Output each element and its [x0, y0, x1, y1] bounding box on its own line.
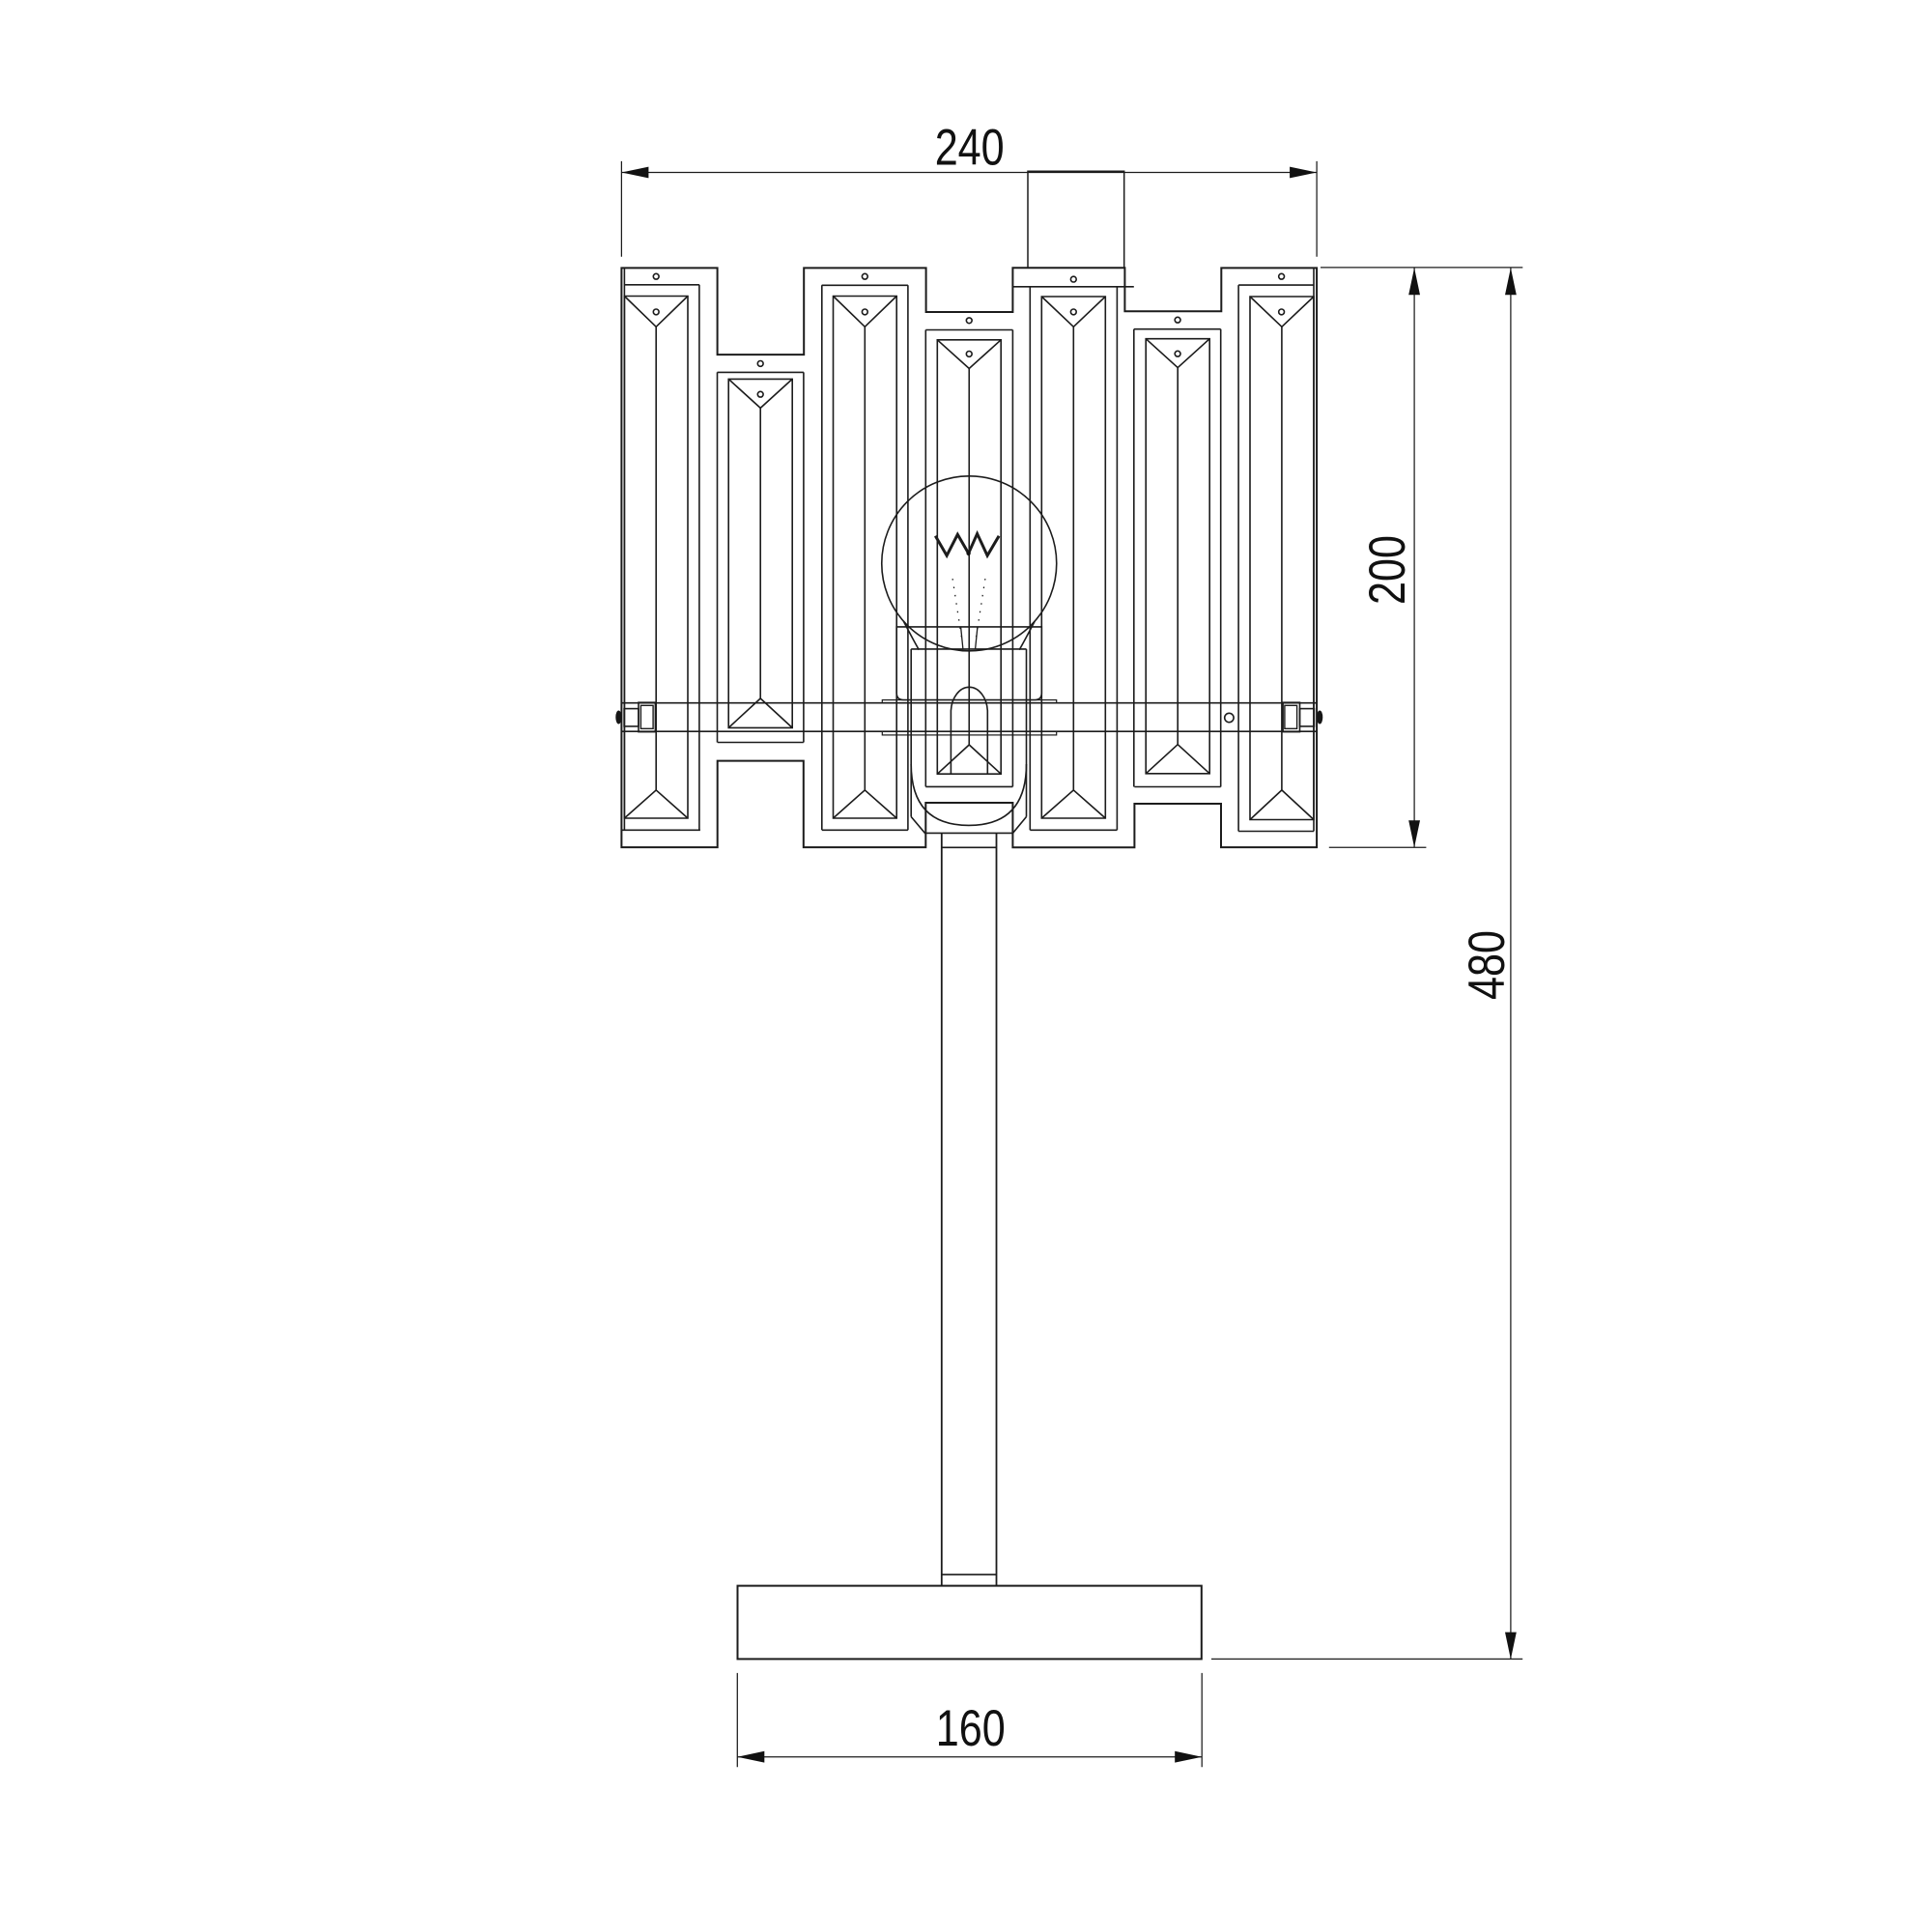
- svg-text:160: 160: [936, 1700, 1006, 1757]
- svg-text:200: 200: [1359, 535, 1416, 605]
- svg-text:480: 480: [1459, 930, 1516, 1000]
- svg-text:240: 240: [935, 120, 1005, 177]
